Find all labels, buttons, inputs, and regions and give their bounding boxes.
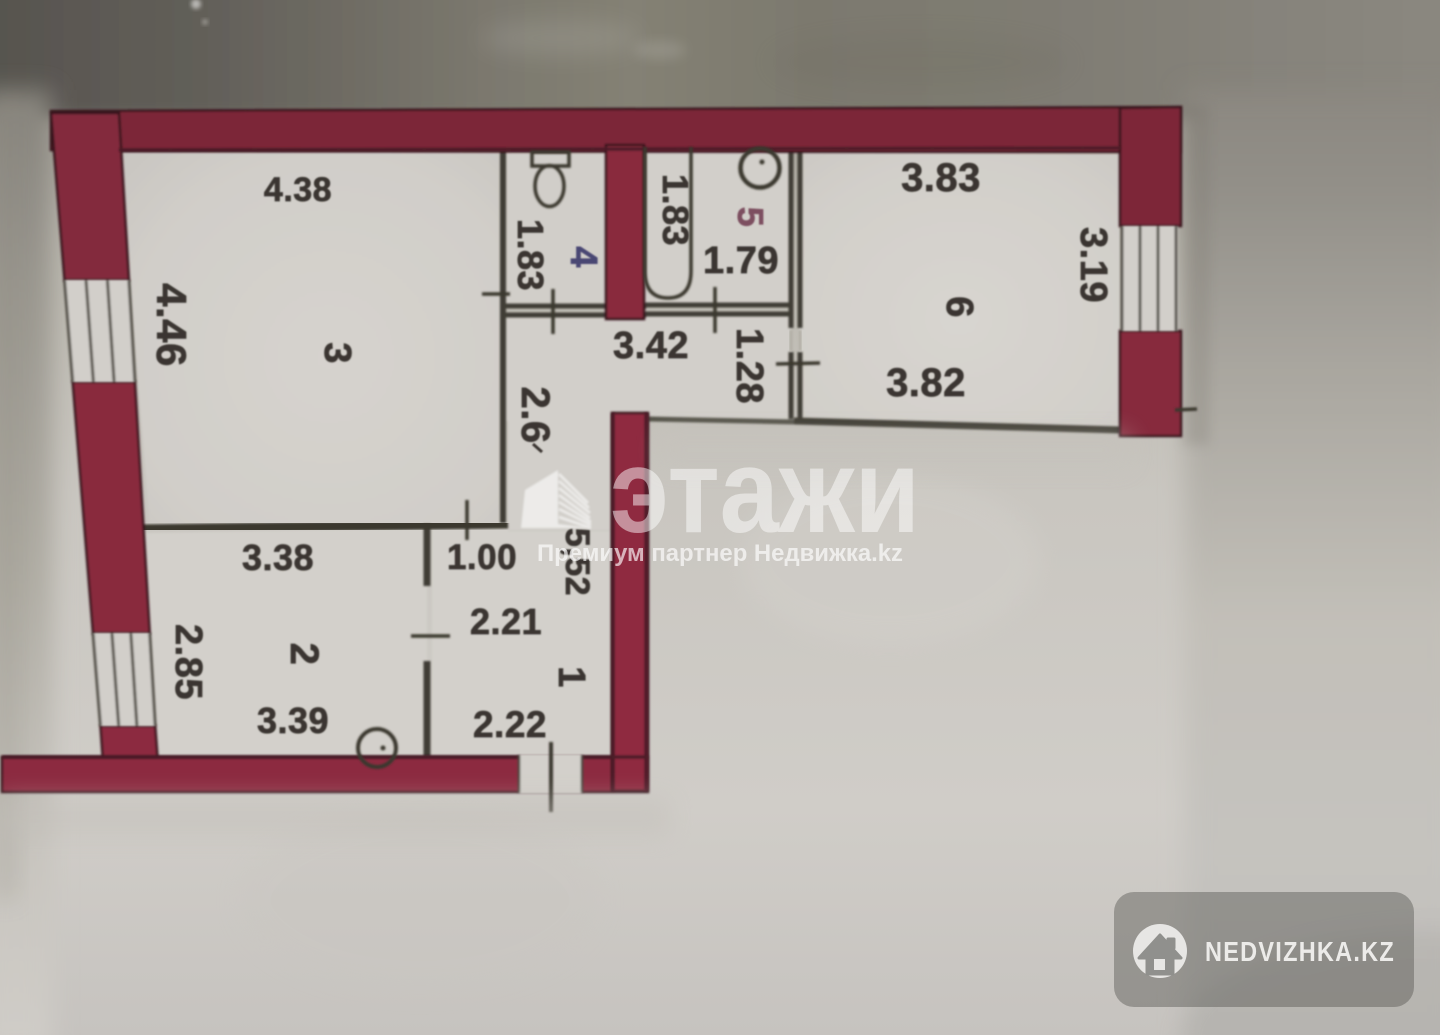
svg-text:3.83: 3.83 [901,156,981,200]
svg-text:3.38: 3.38 [242,537,314,578]
svg-text:1.28: 1.28 [728,328,770,404]
svg-text:этажи: этажи [610,424,920,558]
svg-text:2.6: 2.6 [513,386,557,443]
svg-text:NEDVIZHKA.KZ: NEDVIZHKA.KZ [1205,936,1395,967]
svg-text:1.79: 1.79 [703,240,779,282]
svg-text:5: 5 [730,207,771,228]
svg-text:3.19: 3.19 [1072,227,1114,303]
svg-text:6: 6 [938,296,980,318]
svg-text:2.85: 2.85 [167,624,209,700]
svg-text:2.22: 2.22 [473,704,547,745]
svg-text:1: 1 [550,666,592,688]
svg-text:3: 3 [316,342,358,364]
svg-text:4.46: 4.46 [148,283,195,367]
svg-text:3.42: 3.42 [613,325,689,367]
svg-text:3.39: 3.39 [257,700,329,741]
svg-text:1.83: 1.83 [655,174,696,246]
svg-text:1.83: 1.83 [510,219,551,291]
svg-text:3.82: 3.82 [886,361,966,405]
svg-text:2: 2 [282,643,326,666]
svg-text:Премиум партнер Недвижка.kz: Премиум партнер Недвижка.kz [537,540,903,567]
svg-text:2.21: 2.21 [470,601,542,642]
svg-text:4: 4 [562,246,604,268]
svg-text:4.38: 4.38 [264,171,332,209]
svg-text:1.00: 1.00 [447,538,517,577]
